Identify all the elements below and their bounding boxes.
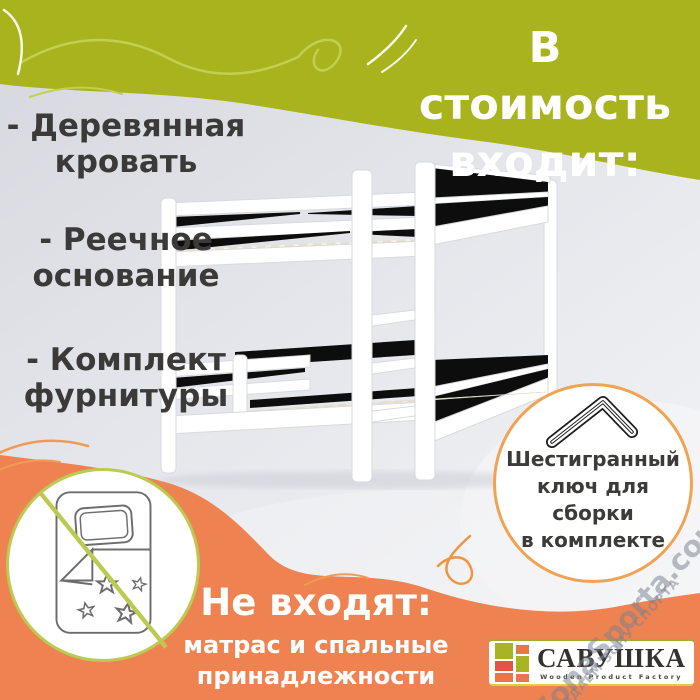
list-item-text: - Реечное [0, 222, 252, 258]
bed-ladder-rail-right [415, 162, 435, 480]
excluded-block: Не входят: матрас и спальные принадлежно… [180, 583, 452, 692]
list-item: - Деревянная кровать [0, 108, 252, 180]
list-item-text: кровать [0, 144, 252, 180]
hex-key-line: Шестигранный [496, 446, 690, 473]
excluded-line1: матрас и спальные [180, 630, 452, 661]
excluded-line2: принадлежности [180, 661, 452, 692]
page-title: В стоимость входит: [395, 20, 695, 191]
brand-logo: САВУШКА Wooden Product Factory [489, 639, 694, 686]
brand-logo-squares [495, 642, 531, 683]
product-poster: В стоимость входит: - Деревянная кровать… [0, 0, 700, 700]
hex-key-line: в комплекте [496, 527, 690, 554]
list-item-text: фурнитуры [0, 378, 252, 414]
allen-key-icon [534, 392, 659, 450]
bed-ladder-rail-left [352, 170, 372, 482]
hex-key-text: Шестигранный ключ для сборки в комплекте [496, 446, 690, 554]
no-bedding-icon [9, 471, 197, 659]
title-line1: В стоимость [395, 20, 695, 134]
brand-name: САВУШКА [537, 644, 686, 672]
hex-key-line: ключ для [496, 473, 690, 500]
hex-key-line: сборки [496, 500, 690, 527]
list-item-text: - Деревянная [0, 108, 252, 144]
no-bedding-badge [6, 468, 200, 662]
list-item-text: - Комплект [0, 342, 252, 378]
list-item-text: основание [0, 258, 252, 294]
excluded-title: Не входят: [180, 583, 452, 623]
brand-tagline: Wooden Product Factory [540, 673, 683, 681]
included-list: - Деревянная кровать - Реечное основание… [0, 108, 252, 456]
title-line2: входит: [395, 134, 695, 191]
list-item: - Реечное основание [0, 222, 252, 294]
list-item: - Комплект фурнитуры [0, 342, 252, 414]
hex-key-badge: Шестигранный ключ для сборки в комплекте [493, 383, 693, 583]
